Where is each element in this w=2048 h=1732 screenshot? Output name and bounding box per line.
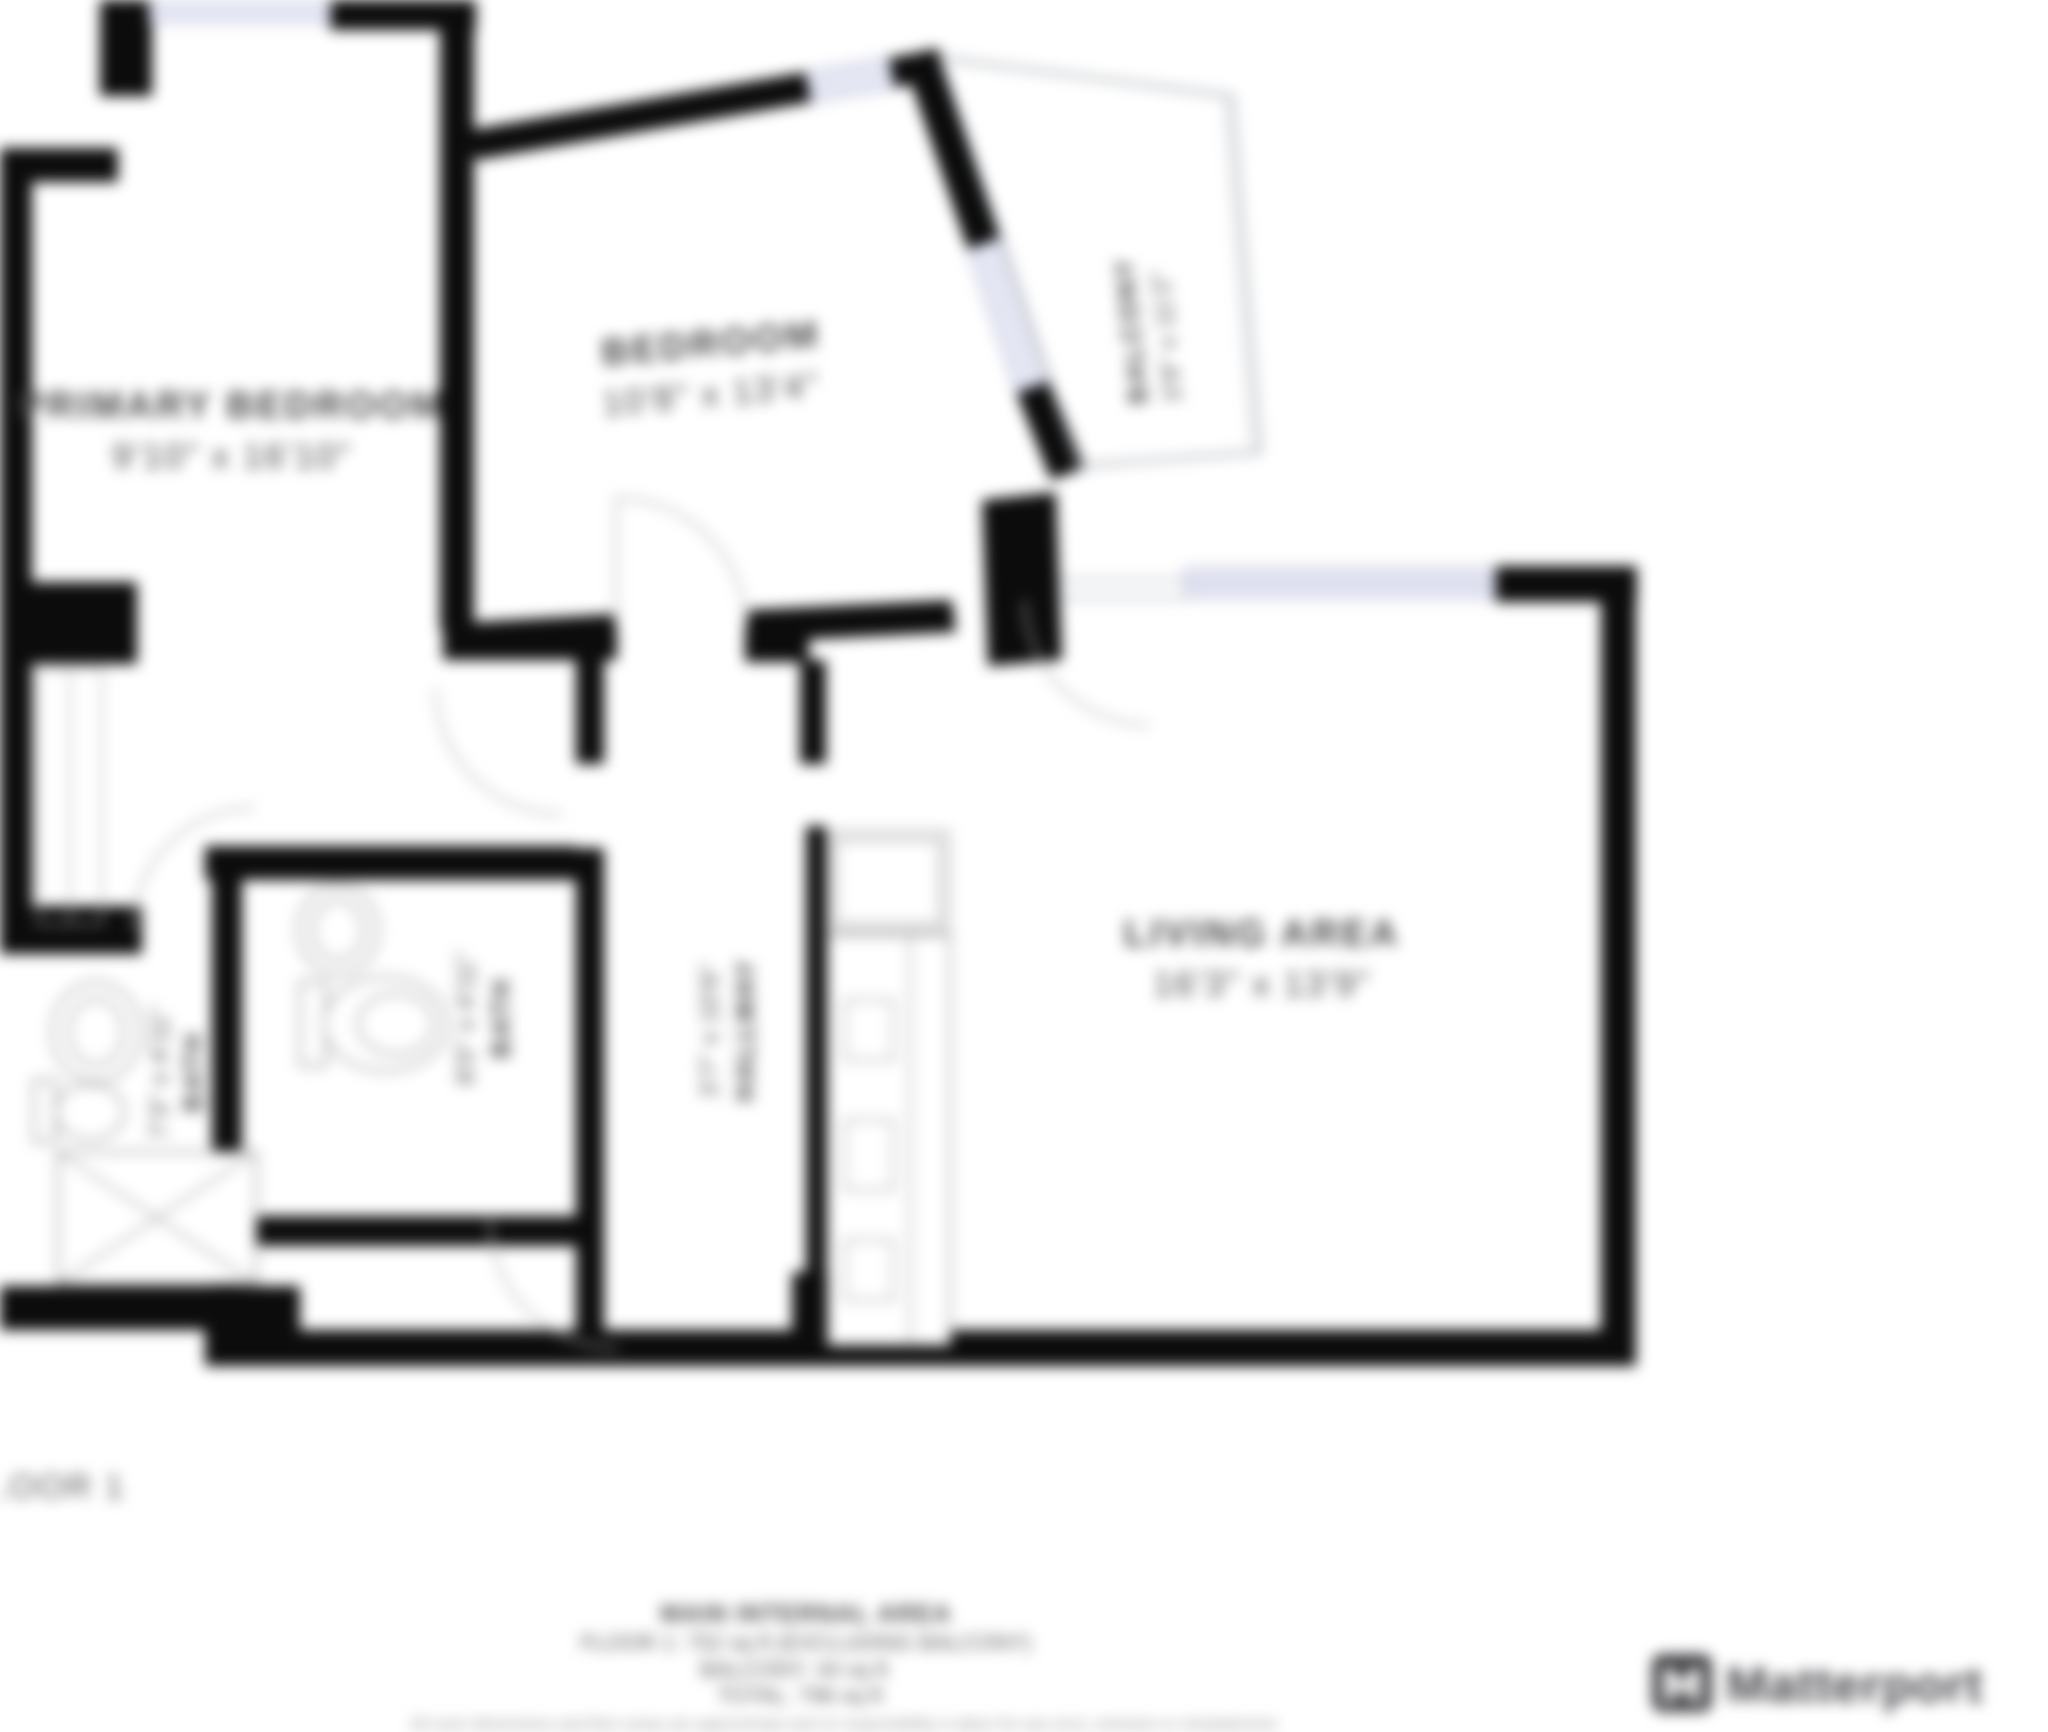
balcony-slider: [1058, 580, 1185, 598]
matterport-logo: Matterport: [1652, 1654, 1983, 1713]
bedroom-label: BEDROOM: [600, 314, 822, 375]
kitchen-counter: [828, 832, 950, 1345]
hallway-label: HALLWAY: [730, 958, 760, 1102]
area-total-line: TOTAL: 796 sq ft: [717, 1683, 882, 1708]
toilet-tank-icon: [34, 1080, 56, 1142]
toilet-tank-icon: [300, 982, 326, 1066]
toilet-icon: [56, 1084, 124, 1140]
floorplan-svg: PRIMARY BEDROOM 9'10" x 16'10" BEDROOM 1…: [0, 0, 2048, 1732]
bath-1-dims: 7'3" x 4'11": [146, 1005, 174, 1138]
window-primary-bedroom: [150, 0, 330, 22]
area-summary: MAIN INTERNAL AREA FLOOR 1: 752 sq ft (E…: [410, 1600, 1281, 1732]
bath-2-label: BATH: [486, 978, 516, 1059]
area-summary-title: MAIN INTERNAL AREA: [660, 1600, 952, 1628]
hallway-dims: 3'7" x 10'6": [696, 962, 724, 1097]
window-bedroom-top: [806, 58, 894, 102]
floor-label: FLOOR 1: [0, 1468, 125, 1506]
primary-bedroom-label: PRIMARY BEDROOM: [18, 385, 445, 427]
matterport-logo-text: Matterport: [1726, 1657, 1983, 1713]
floorplan-screenshot: PRIMARY BEDROOM 9'10" x 16'10" BEDROOM 1…: [0, 0, 2048, 1732]
living-area-label: LIVING AREA: [1124, 913, 1401, 955]
area-floor-line: FLOOR 1: 752 sq ft (EXCLUDING BALCONY): [580, 1630, 1031, 1655]
area-disclaimer: All room dimensions and floor areas are …: [410, 1716, 1281, 1732]
bath-2-fixtures: [298, 885, 448, 1071]
primary-bedroom-dims: 9'10" x 16'10": [112, 437, 351, 476]
closet-doors: [38, 668, 102, 924]
balcony-dims: 3'9" x 11'2": [1146, 268, 1188, 404]
blurred-plan-wrapper: PRIMARY BEDROOM 9'10" x 16'10" BEDROOM 1…: [0, 0, 2048, 1732]
bath-2-dims: 8'0" x 4'11": [452, 951, 480, 1084]
door-arc-bedroom: [616, 498, 746, 628]
windows: [150, 0, 1495, 598]
living-area-dims: 16'3" x 13'9": [1153, 965, 1371, 1004]
kitchen-sink-icon: [845, 1120, 893, 1190]
bath-1-label: BATH: [178, 1032, 208, 1113]
door-arc-primary-bedroom: [436, 688, 562, 814]
matterport-logo-icon: [1652, 1654, 1712, 1712]
bedroom-dims: 10'8" x 13'4": [601, 366, 822, 424]
area-balcony-line: BALCONY: 44 sq ft: [700, 1657, 888, 1682]
